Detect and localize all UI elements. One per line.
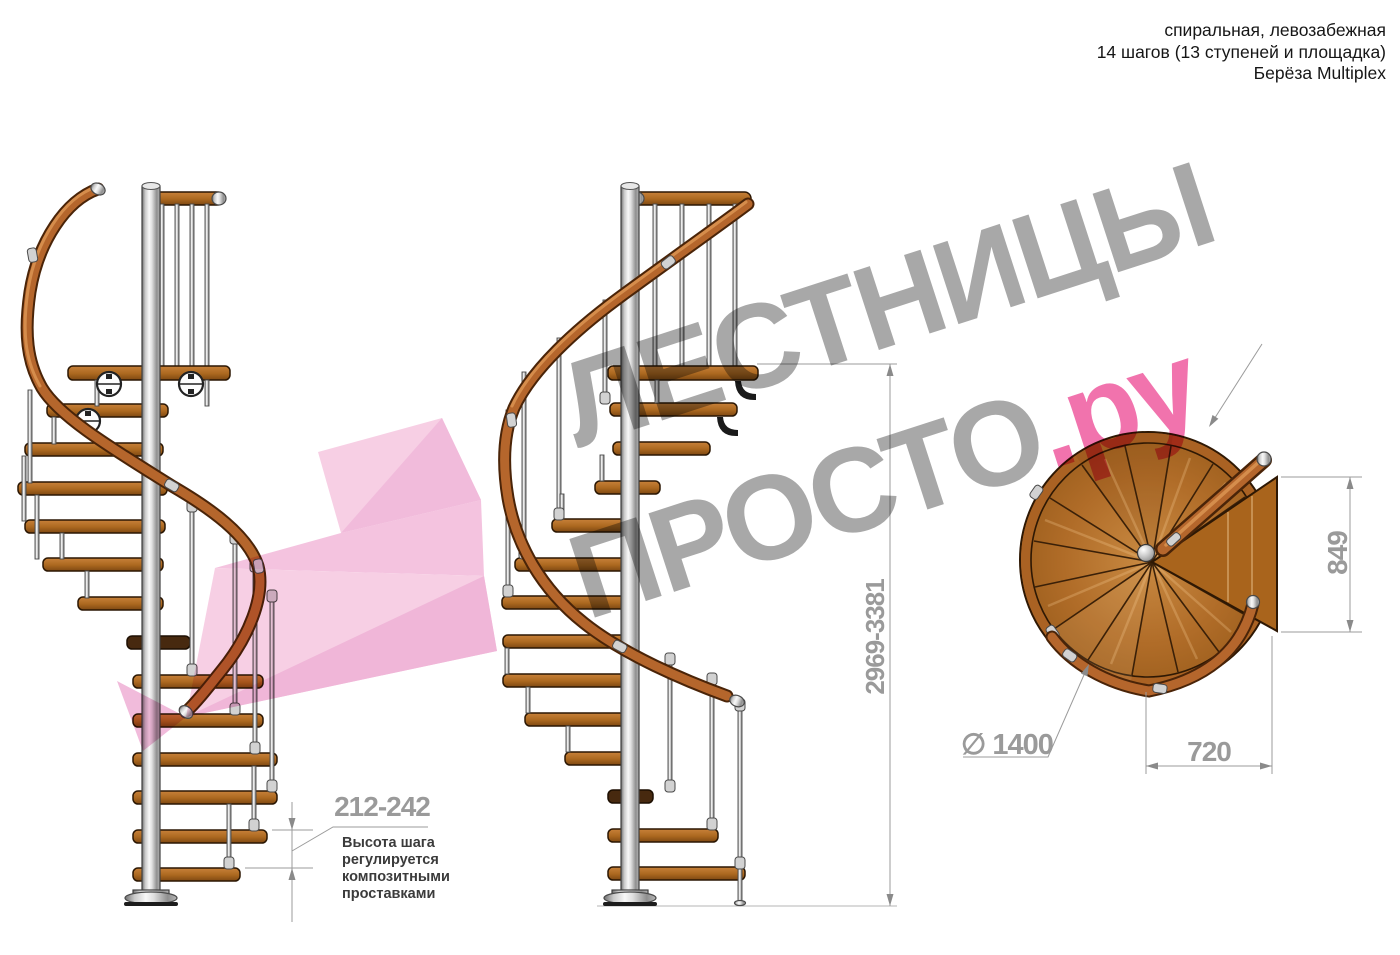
dim-total-height: 2969-3381 bbox=[860, 537, 888, 737]
dim-landing-depth: 849 bbox=[1322, 453, 1350, 653]
product-info: спиральная, левозабежная 14 шагов (13 ст… bbox=[1097, 20, 1386, 85]
technical-drawing-page: спиральная, левозабежная 14 шагов (13 ст… bbox=[0, 0, 1400, 955]
dim-diameter: ∅ 1400 bbox=[961, 727, 1053, 762]
product-steps: 14 шагов (13 ступеней и площадка) bbox=[1097, 42, 1386, 64]
dim-step-height: 212-242 bbox=[332, 791, 432, 823]
dim-step-width: 720 bbox=[1159, 736, 1259, 768]
product-material: Берёза Multiplex bbox=[1097, 63, 1386, 85]
promo-arrow bbox=[117, 418, 497, 751]
product-type: спиральная, левозабежная bbox=[1097, 20, 1386, 42]
step-height-note: Высота шага регулируется композитными пр… bbox=[342, 835, 462, 903]
left-elevation-view bbox=[18, 181, 277, 906]
center-pole-ball bbox=[1138, 545, 1155, 562]
